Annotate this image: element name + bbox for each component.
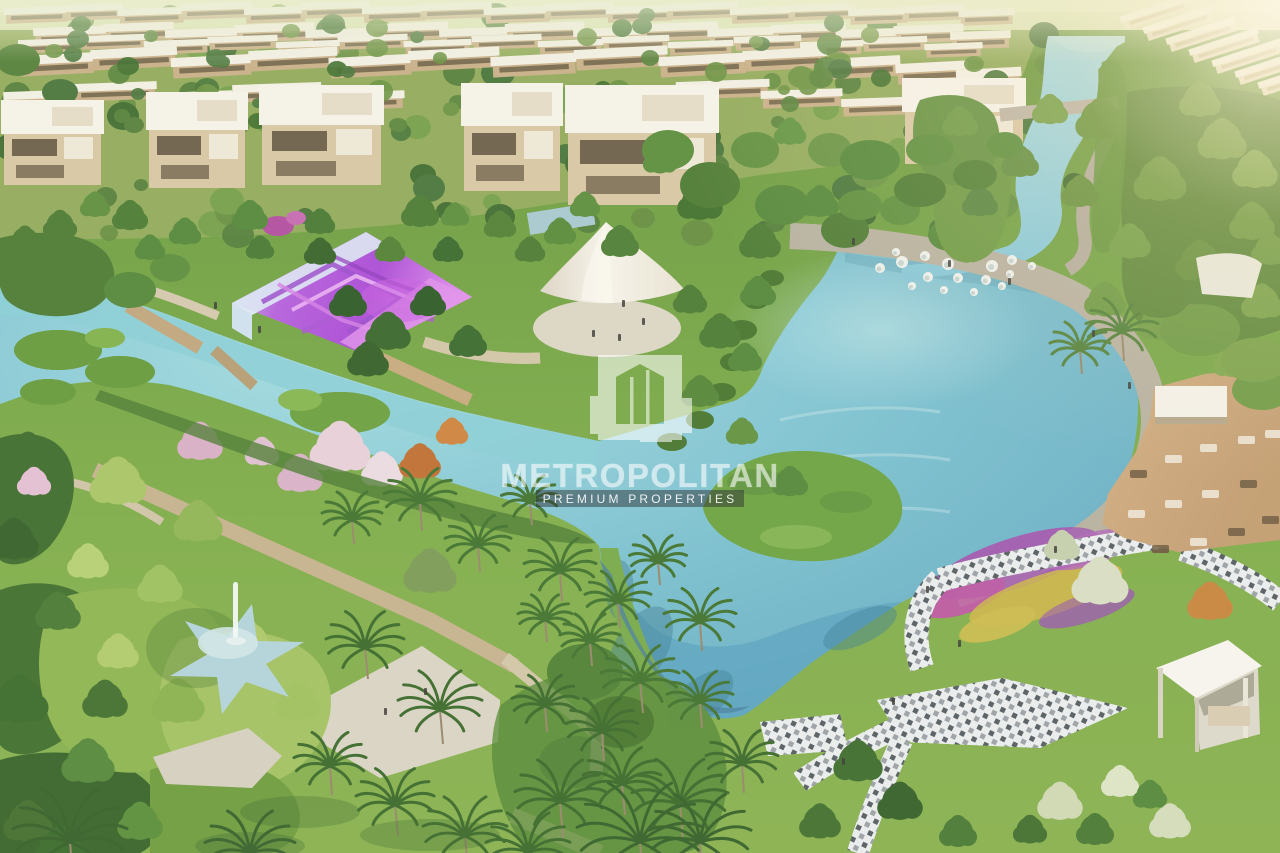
svg-text:PREMIUM PROPERTIES: PREMIUM PROPERTIES — [543, 492, 738, 506]
svg-text:METROPOLITAN: METROPOLITAN — [500, 457, 780, 494]
